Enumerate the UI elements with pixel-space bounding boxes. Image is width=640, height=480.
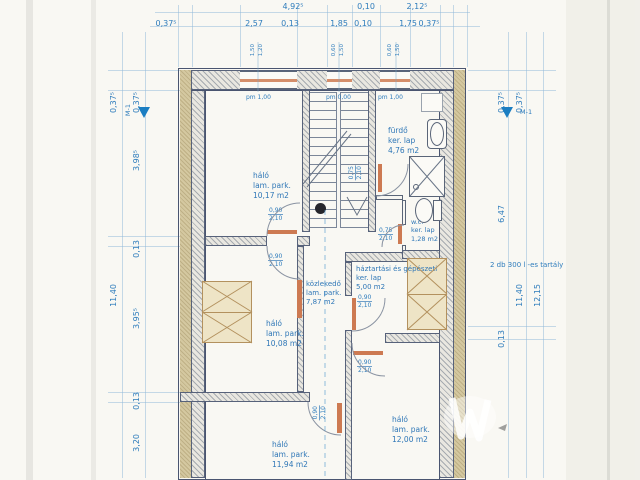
wardrobe-divider <box>202 312 252 313</box>
room-label-halo-2: háló lam. park. 10,08 m2 <box>266 319 304 348</box>
dim-label: 0,37⁵ <box>418 19 439 28</box>
door-size-label: 0,90 2,10 <box>312 405 327 420</box>
dim-line <box>453 5 454 67</box>
room-label-halo-1: háló lam. park. 10,17 m2 <box>253 171 291 200</box>
dim-label: 1,85 <box>330 19 348 28</box>
window-sill <box>240 79 297 82</box>
scan-artifact <box>26 0 33 480</box>
door-width: 0,90 <box>312 405 320 420</box>
dim-label: 0,10 <box>354 19 372 28</box>
dim-line <box>327 5 328 67</box>
room-floor: lam. park. <box>266 329 304 339</box>
room-floor: ker. lap <box>388 136 419 146</box>
room-name: közlekedő <box>306 280 341 289</box>
wall-partition <box>205 236 267 246</box>
window-sill-label: pm 0,00 <box>326 94 351 101</box>
room-floor: lam. park. <box>392 425 430 435</box>
scan-artifact <box>566 0 640 480</box>
dim-label: 12,15 <box>533 284 542 307</box>
wall-corridor <box>345 262 352 296</box>
door-leaf <box>378 164 382 192</box>
door-width: 0,90 <box>268 207 283 215</box>
dim-label: 1,75 <box>399 19 417 28</box>
room-floor: lam. park. <box>272 450 310 460</box>
dim-line <box>145 32 146 478</box>
door-leaf <box>267 230 297 234</box>
room-name: w.c. <box>411 218 438 226</box>
dim-label: 0,37⁵ <box>109 92 118 113</box>
window-sill <box>327 79 352 82</box>
dim-line <box>468 90 556 91</box>
door-height: 2,10 <box>320 406 327 419</box>
room-floor: lam. park. <box>253 181 291 191</box>
room-label-halo-3: háló lam. park. 11,94 m2 <box>272 440 310 469</box>
room-area: 4,76 m2 <box>388 146 419 156</box>
room-label-wc: w.c. ker. lap 1,28 m2 <box>411 218 438 243</box>
wall-bath-bottom <box>376 195 403 200</box>
window <box>380 71 410 89</box>
sink-basin <box>430 122 444 146</box>
dim-label: 11,40 <box>109 284 118 307</box>
tank-annotation: 2 db 300 l -es tartály <box>490 261 563 269</box>
window <box>327 71 352 89</box>
room-area: 7,87 m2 <box>306 298 341 307</box>
room-area: 11,94 m2 <box>272 460 310 470</box>
dim-line <box>508 32 509 478</box>
scan-artifact <box>91 0 96 480</box>
room-area: 10,08 m2 <box>266 339 304 349</box>
dim-label: 4,92⁵ <box>282 2 303 11</box>
dim-line <box>155 12 470 13</box>
wall-top <box>191 70 454 90</box>
equipment-divider <box>407 294 447 295</box>
window-size-label: 1,50 <box>395 44 401 56</box>
room-area: 5,00 m2 <box>356 283 437 292</box>
room-name: fürdő <box>388 126 419 136</box>
room-name: háló <box>266 319 304 329</box>
wall-corridor <box>345 330 352 480</box>
scan-artifact <box>607 0 610 480</box>
wall-partition <box>297 236 310 246</box>
door-leaf <box>398 224 402 244</box>
stair-rail <box>336 92 341 228</box>
insulation-left <box>180 70 191 478</box>
dim-label: 0,13 <box>132 392 141 410</box>
room-area: 12,00 m2 <box>392 435 430 445</box>
dim-label: 0,13 <box>497 330 506 348</box>
room-label-haztartasi: háztartási és gépészeti ker. lap 5,00 m2 <box>356 265 437 292</box>
room-floor: lam. park. <box>306 289 341 298</box>
section-marker-icon <box>501 107 513 118</box>
dim-line <box>240 5 241 67</box>
door-width: 0,75 <box>348 165 356 180</box>
room-label-furdo: fürdő ker. lap 4,76 m2 <box>388 126 419 155</box>
room-floor: ker. lap <box>356 274 437 283</box>
section-marker-icon <box>138 107 150 118</box>
window-size-label: 1,50 <box>250 44 256 56</box>
room-name: háló <box>253 171 291 181</box>
floor-plan-scan: 4,92⁵ 0,10 2,12⁵ 0,37⁵ 2,57 0,13 1,85 0,… <box>0 0 640 480</box>
window-size-label: 0,60 <box>331 44 337 56</box>
window-sill-label: pm 1,00 <box>246 94 271 101</box>
dim-label: 0,13 <box>281 19 299 28</box>
wall-line <box>191 90 454 91</box>
door-leaf <box>353 351 383 355</box>
door-size-label: 0,90 2,10 <box>268 253 283 268</box>
wall-stair-left <box>302 90 310 232</box>
room-area: 1,28 m2 <box>411 235 438 243</box>
dim-line <box>297 5 298 67</box>
door-size-label: 0,90 2,10 <box>357 359 372 374</box>
window-sill-label: pm 1,00 <box>378 94 403 101</box>
dim-label: 2,57 <box>245 19 263 28</box>
window <box>240 71 297 89</box>
dim-line <box>410 5 411 67</box>
radiator <box>297 280 302 318</box>
room-label-kozlekedo: közlekedő lam. park. 7,87 m2 <box>306 280 341 307</box>
dim-line <box>526 32 527 478</box>
section-marker-label: M-1 <box>520 108 532 116</box>
dim-label: 6,47 <box>497 205 506 223</box>
door-height: 2,10 <box>379 235 392 242</box>
wall-left <box>191 70 205 478</box>
dim-label: 11,40 <box>515 284 524 307</box>
dim-label: 3,95⁵ <box>132 308 141 329</box>
margin-mark <box>498 424 507 431</box>
dim-label: 3,20 <box>132 434 141 452</box>
room-name: háló <box>272 440 310 450</box>
section-marker-label: M-1 <box>124 104 132 116</box>
window-sill <box>380 79 410 82</box>
dim-line <box>192 5 193 67</box>
door-height: 2,10 <box>269 215 282 222</box>
shower <box>409 156 445 197</box>
door-height: 2,10 <box>269 261 282 268</box>
dim-line <box>122 32 123 478</box>
room-label-halo-4: háló lam. park. 12,00 m2 <box>392 415 430 444</box>
room-name: háló <box>392 415 430 425</box>
door-size-label: 0,75 2,10 <box>348 165 363 180</box>
dim-line <box>380 5 381 67</box>
door-size-label: 0,75 2,10 <box>378 227 393 242</box>
window-size-label: 0,60 <box>387 44 393 56</box>
door-height: 2,10 <box>358 367 371 374</box>
door-size-label: 0,90 2,10 <box>357 294 372 309</box>
shower-drain <box>413 184 419 190</box>
room-floor: ker. lap <box>411 226 438 234</box>
door-height: 2,10 <box>358 302 371 309</box>
dim-line <box>467 5 468 67</box>
shelf-box <box>421 93 443 112</box>
door-width: 0,90 <box>268 253 283 261</box>
wall-wc <box>402 200 406 225</box>
door-width: 0,90 <box>357 359 372 367</box>
dim-line <box>543 32 544 478</box>
insulation-right <box>454 70 465 478</box>
dim-line <box>352 5 353 67</box>
room-name: háztartási és gépészeti <box>356 265 437 274</box>
door-width: 0,75 <box>378 227 393 235</box>
room-area: 10,17 m2 <box>253 191 291 201</box>
wall-stair-right <box>368 90 376 232</box>
dim-label: 0,13 <box>132 240 141 258</box>
dim-label: 0,37⁵ <box>155 19 176 28</box>
dim-line <box>468 339 556 340</box>
section-point <box>315 203 326 214</box>
wall-partition <box>385 333 440 343</box>
dim-label: 0,10 <box>357 2 375 11</box>
dim-line <box>468 326 556 327</box>
door-width: 0,90 <box>357 294 372 302</box>
dim-line <box>440 5 441 67</box>
dim-line <box>468 70 556 71</box>
dim-label: 3,98⁵ <box>132 150 141 171</box>
dim-line <box>178 5 179 67</box>
door-size-label: 0,90 2,10 <box>268 207 283 222</box>
door-height: 2,10 <box>356 166 363 179</box>
window-size-label: 1,50 <box>339 44 345 56</box>
door-leaf <box>352 298 356 330</box>
dim-label: 2,12⁵ <box>406 2 427 11</box>
wall-partition <box>180 392 310 402</box>
door-leaf <box>337 403 342 433</box>
window-size-label: 1,20 <box>258 44 264 56</box>
